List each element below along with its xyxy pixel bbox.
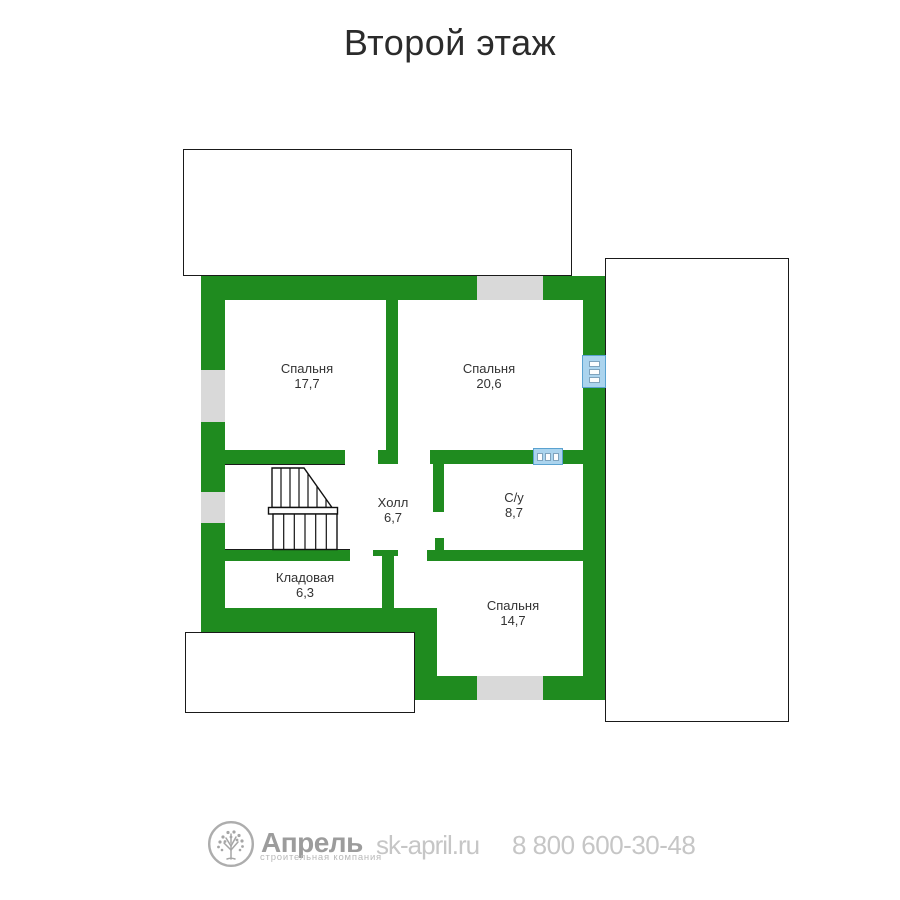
wall-interior-bedroom-divider xyxy=(386,300,398,450)
window-bottom xyxy=(477,676,543,700)
room-name: Кладовая xyxy=(276,570,334,585)
phone-number: 8 800 600-30-48 xyxy=(512,830,695,861)
radiator-pane xyxy=(589,377,600,383)
room-area: 17,7 xyxy=(281,376,333,391)
company-logo xyxy=(206,819,256,869)
room-name: Холл xyxy=(378,495,409,510)
window-left-lower xyxy=(201,492,225,523)
wall-interior-storage-divider xyxy=(382,555,394,608)
page-title: Второй этаж xyxy=(0,22,900,64)
website-url: sk-april.ru xyxy=(376,830,479,861)
radiator-icon-right-wall xyxy=(582,355,606,388)
radiator-pane xyxy=(589,369,600,375)
floor-plan-page: Второй этаж xyxy=(0,0,900,900)
wall-exterior-top xyxy=(201,276,605,300)
tree-icon xyxy=(209,822,253,866)
room-label-storage: Кладовая 6,3 xyxy=(276,570,334,600)
window-left-upper xyxy=(201,370,225,422)
room-label-bedroom-3: Спальня 14,7 xyxy=(487,598,539,628)
room-name: Спальня xyxy=(463,361,515,376)
wall-exterior-step xyxy=(415,608,437,700)
room-name: Спальня xyxy=(487,598,539,613)
wall-exterior-bottom-left xyxy=(201,608,437,632)
wall-interior-bathroom-stub xyxy=(435,538,444,550)
room-label-bedroom-1: Спальня 17,7 xyxy=(281,361,333,391)
window-top xyxy=(477,276,543,300)
wall-interior-bathroom-left xyxy=(433,464,444,512)
roof-outline-bottom-left xyxy=(185,632,415,713)
wall-interior-row2-right xyxy=(427,550,583,561)
room-area: 6,7 xyxy=(378,510,409,525)
room-label-bedroom-2: Спальня 20,6 xyxy=(463,361,515,391)
radiator-pane xyxy=(537,453,543,461)
radiator-pane xyxy=(545,453,551,461)
radiator-icon-hall-wall xyxy=(533,448,563,465)
wall-exterior-left xyxy=(201,276,225,632)
radiator-pane xyxy=(553,453,559,461)
room-label-hall: Холл 6,7 xyxy=(378,495,409,525)
brand-tagline: строительная компания xyxy=(260,852,382,863)
room-area: 14,7 xyxy=(487,613,539,628)
room-name: Спальня xyxy=(281,361,333,376)
room-name: С/у xyxy=(504,490,524,505)
room-label-bathroom: С/у 8,7 xyxy=(504,490,524,520)
stairs xyxy=(264,462,344,557)
room-area: 20,6 xyxy=(463,376,515,391)
wall-exterior-right xyxy=(583,276,605,700)
roof-outline-top xyxy=(183,149,572,276)
roof-outline-right xyxy=(605,258,789,722)
radiator-pane xyxy=(589,361,600,367)
room-area: 6,3 xyxy=(276,585,334,600)
wall-interior-row1-cap xyxy=(378,450,398,464)
room-area: 8,7 xyxy=(504,505,524,520)
